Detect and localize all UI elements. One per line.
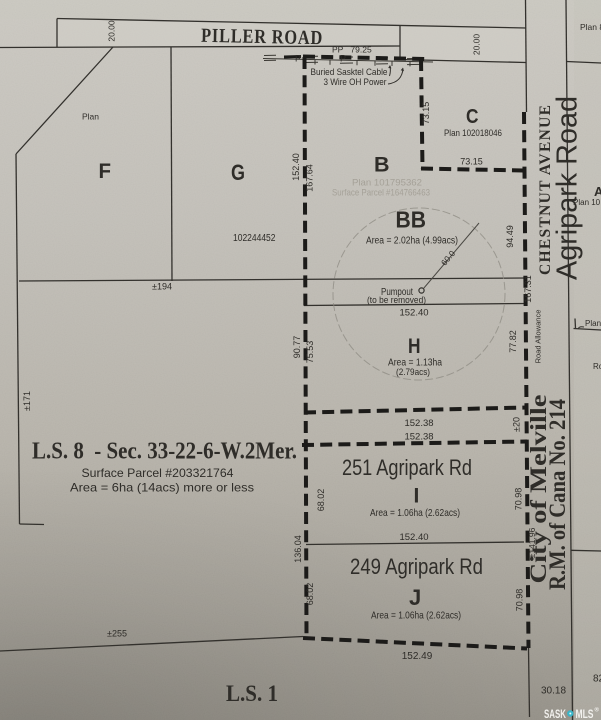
svg-text:A: A: [594, 184, 601, 199]
svg-text:77.82: 77.82: [508, 330, 518, 353]
svg-text:±194: ±194: [152, 282, 172, 292]
svg-text:20.00: 20.00: [472, 34, 482, 56]
svg-text:Area = 1.06ha (2.62acs): Area = 1.06ha (2.62acs): [371, 610, 461, 622]
svg-text:SASK: SASK: [544, 709, 566, 720]
svg-text:136.04: 136.04: [293, 535, 303, 563]
svg-text:75.53: 75.53: [305, 341, 315, 364]
svg-text:L.S. 1: L.S. 1: [226, 681, 278, 706]
svg-text:Plan 10: Plan 10: [573, 198, 601, 207]
svg-text:J: J: [409, 585, 421, 610]
svg-text:70.98: 70.98: [515, 589, 525, 612]
svg-text:±171: ±171: [22, 391, 32, 411]
svg-text:C: C: [466, 106, 479, 128]
svg-text:152.38: 152.38: [404, 418, 433, 429]
svg-text:68.02: 68.02: [316, 489, 326, 512]
svg-text:Area = 2.02ha (4.99acs): Area = 2.02ha (4.99acs): [366, 236, 458, 247]
svg-text:Plan 8: Plan 8: [580, 22, 601, 32]
svg-text:Road Allowance: Road Allowance: [534, 310, 543, 364]
svg-text:82: 82: [593, 674, 601, 685]
svg-text:152.40: 152.40: [399, 308, 428, 319]
svg-text:Plan: Plan: [82, 112, 99, 122]
svg-text:(to be removed): (to be removed): [367, 295, 426, 306]
svg-text:Ro: Ro: [593, 362, 601, 371]
svg-text:PILLER ROAD: PILLER ROAD: [201, 25, 323, 50]
svg-text:Plan 102018046: Plan 102018046: [444, 128, 502, 139]
svg-text:±20: ±20: [512, 417, 522, 432]
svg-text:152.38: 152.38: [404, 432, 433, 443]
svg-text:Agripark Road: Agripark Road: [552, 96, 584, 280]
svg-text:68.02: 68.02: [305, 583, 315, 606]
svg-text:152.40: 152.40: [291, 153, 301, 181]
svg-text:®: ®: [595, 707, 600, 714]
svg-text:F: F: [99, 160, 112, 183]
svg-text:90.77: 90.77: [292, 336, 302, 359]
svg-text:P: P: [295, 54, 301, 64]
svg-text:PP 79.25: PP 79.25: [332, 45, 372, 55]
svg-text:H: H: [408, 335, 421, 358]
svg-text:94.49: 94.49: [505, 225, 515, 248]
svg-text:73.15: 73.15: [460, 157, 483, 167]
svg-text:MLS: MLS: [576, 709, 594, 720]
svg-text:(2.79acs): (2.79acs): [396, 367, 430, 378]
svg-text:R.M. of Cana No. 214: R.M. of Cana No. 214: [545, 399, 570, 590]
svg-text:167.64: 167.64: [305, 164, 315, 192]
svg-text:249 Agripark Rd: 249 Agripark Rd: [350, 554, 483, 579]
svg-text:B: B: [374, 153, 390, 176]
svg-text:BB: BB: [396, 207, 427, 233]
svg-text:±255: ±255: [107, 629, 127, 639]
svg-text:I: I: [414, 485, 420, 508]
svg-text:70.98: 70.98: [514, 488, 524, 511]
svg-text:152.49: 152.49: [402, 651, 433, 662]
svg-text:Plan: Plan: [585, 319, 601, 328]
svg-text:20.00: 20.00: [107, 20, 117, 42]
svg-text:152.40: 152.40: [399, 532, 428, 543]
svg-text:167.31: 167.31: [523, 275, 533, 303]
svg-text:G: G: [231, 160, 245, 185]
svg-text:Surface Parcel #203321764: Surface Parcel #203321764: [82, 466, 234, 480]
svg-text:30.18: 30.18: [541, 686, 566, 697]
svg-text:Area = 6ha (14acs) more or les: Area = 6ha (14acs) more or less: [70, 481, 254, 495]
svg-text:251 Agripark Rd: 251 Agripark Rd: [342, 455, 472, 480]
svg-text:L.S. 8 - Sec. 33-22-6-W.2Mer.: L.S. 8 - Sec. 33-22-6-W.2Mer.: [32, 439, 297, 465]
svg-text:Surface Parcel #164766463: Surface Parcel #164766463: [332, 188, 430, 199]
svg-text:P: P: [340, 54, 346, 64]
svg-text:73.15: 73.15: [421, 102, 431, 125]
svg-text:102244452: 102244452: [233, 233, 276, 244]
svg-text:Area = 1.06ha (2.62acs): Area = 1.06ha (2.62acs): [370, 507, 460, 519]
svg-text:3 Wire OH Power: 3 Wire OH Power: [324, 77, 387, 88]
